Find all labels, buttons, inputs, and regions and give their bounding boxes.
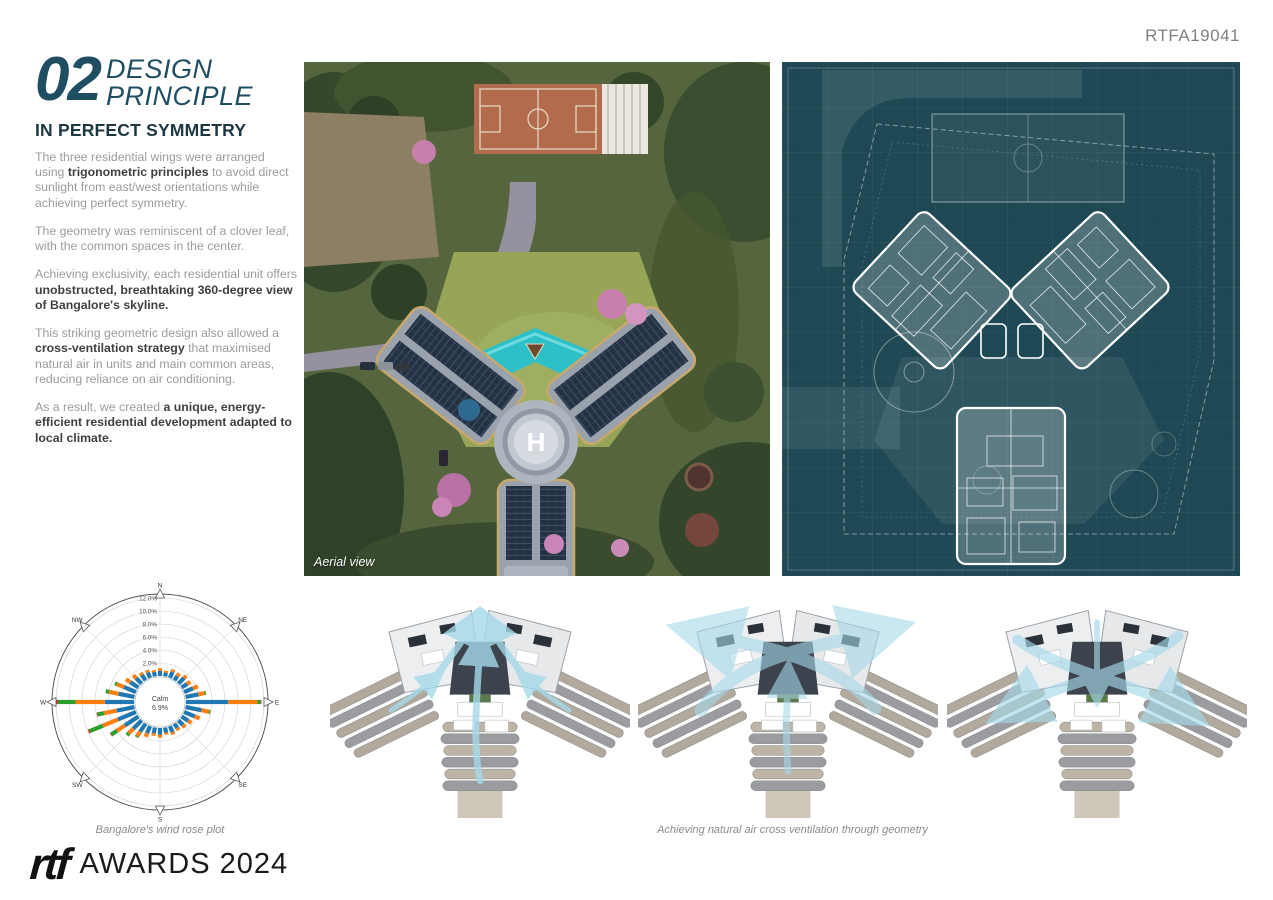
body-paragraph: As a result, we created a unique, energy… xyxy=(35,400,297,446)
svg-text:E: E xyxy=(275,700,280,707)
body-paragraph: This striking geometric design also allo… xyxy=(35,326,297,387)
body-paragraph: Achieving exclusivity, each residential … xyxy=(35,267,297,313)
tower-airflow-graphic-2 xyxy=(638,585,938,820)
body-paragraph: The geometry was reminiscent of a clover… xyxy=(35,224,297,254)
site-plan-blueprint xyxy=(782,62,1240,576)
section-heading: 02 DESIGN PRINCIPLE xyxy=(35,52,297,110)
spa-pool xyxy=(458,399,480,421)
section-title: DESIGN PRINCIPLE xyxy=(106,56,253,110)
basketball-court xyxy=(474,84,602,154)
wind-rose-graphic: Calm6.9%2.0%4.0%6.0%8.0%10.0%12.0%NNEESE… xyxy=(40,582,280,822)
svg-text:Calm: Calm xyxy=(152,696,169,703)
ventilation-diagram-2 xyxy=(638,585,946,820)
ventilation-diagram-1 xyxy=(330,585,638,820)
svg-text:4.0%: 4.0% xyxy=(143,648,158,655)
body-text: The three residential wings were arrange… xyxy=(35,150,297,446)
court-outline xyxy=(932,114,1124,202)
aerial-caption: Aerial view xyxy=(314,555,374,569)
award-presentation-board: RTFA19041 02 DESIGN PRINCIPLE IN PERFECT… xyxy=(0,0,1273,900)
ventilation-caption: Achieving natural air cross ventilation … xyxy=(330,824,1255,836)
aerial-view-image: H Aeri xyxy=(304,62,770,576)
wind-rose-chart: Calm6.9%2.0%4.0%6.0%8.0%10.0%12.0%NNEESE… xyxy=(40,582,280,836)
svg-text:H: H xyxy=(527,427,546,457)
canopy-roof xyxy=(602,84,648,154)
pond xyxy=(685,513,719,547)
svg-text:S: S xyxy=(158,817,163,823)
text-column: 02 DESIGN PRINCIPLE IN PERFECT SYMMETRY … xyxy=(35,52,297,459)
wind-rose-caption: Bangalore's wind rose plot xyxy=(40,824,280,836)
ventilation-diagrams xyxy=(330,585,1255,820)
submission-code: RTFA19041 xyxy=(1145,26,1240,46)
svg-text:8.0%: 8.0% xyxy=(143,622,158,629)
svg-text:10.0%: 10.0% xyxy=(139,609,157,616)
svg-text:SW: SW xyxy=(72,782,83,789)
svg-text:6.9%: 6.9% xyxy=(152,705,168,712)
awards-2024-label: AWARDS 2024 xyxy=(79,848,288,881)
tower-airflow-graphic-1 xyxy=(330,585,630,820)
aerial-render-graphic: H xyxy=(304,62,770,576)
svg-text:12.0%: 12.0% xyxy=(139,596,157,603)
rtf-logo: rtf xyxy=(29,845,69,885)
blueprint-graphic xyxy=(782,62,1240,576)
helipad: H xyxy=(505,411,567,473)
tower-airflow-graphic-3 xyxy=(947,585,1247,820)
dirt-lot xyxy=(304,112,439,267)
section-number: 02 xyxy=(35,52,100,108)
section-subtitle: IN PERFECT SYMMETRY xyxy=(35,120,297,141)
pond xyxy=(686,464,712,490)
svg-text:SE: SE xyxy=(238,782,247,789)
svg-text:2.0%: 2.0% xyxy=(143,661,158,668)
body-paragraph: The three residential wings were arrange… xyxy=(35,150,297,211)
svg-text:W: W xyxy=(40,700,47,707)
footer-logo-row: rtf AWARDS 2024 xyxy=(30,845,288,885)
svg-text:6.0%: 6.0% xyxy=(143,635,158,642)
ventilation-diagram-3 xyxy=(947,585,1255,820)
